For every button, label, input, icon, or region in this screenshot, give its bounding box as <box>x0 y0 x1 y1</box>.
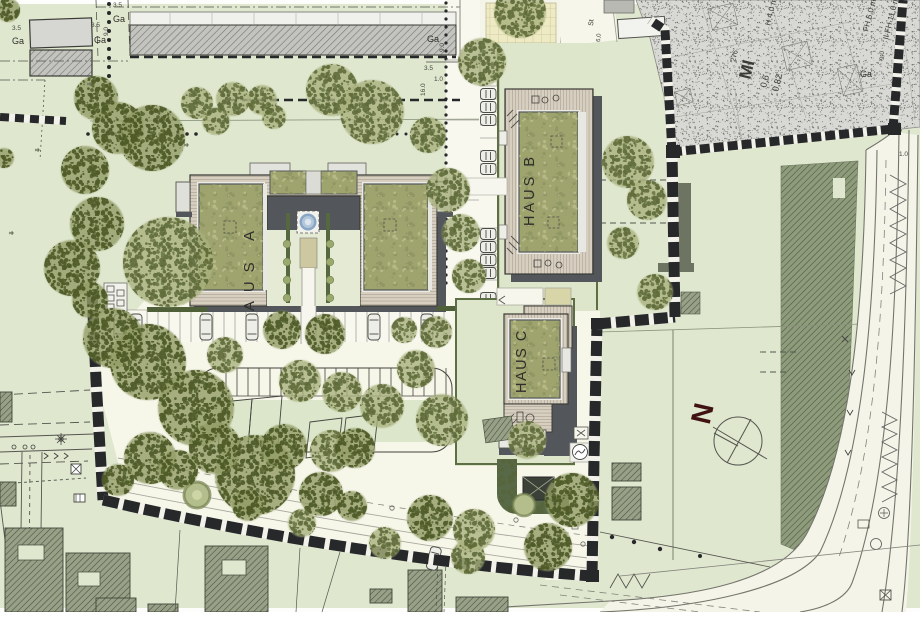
svg-text:Ga: Ga <box>113 14 125 24</box>
svg-text:Ga: Ga <box>860 69 872 79</box>
svg-text:3.5: 3.5 <box>12 25 21 32</box>
svg-text:3.5: 3.5 <box>91 22 100 29</box>
svg-text:Ga: Ga <box>12 36 24 46</box>
svg-text:HAUS B: HAUS B <box>522 154 538 226</box>
svg-text:3.5: 3.5 <box>424 65 433 72</box>
svg-text:St: St <box>588 19 596 26</box>
svg-text:9.0: 9.0 <box>879 51 886 60</box>
svg-text:1.0: 1.0 <box>899 151 908 158</box>
svg-text:9.0: 9.0 <box>103 27 110 36</box>
svg-text:3.5: 3.5 <box>113 2 122 9</box>
svg-text:Ga: Ga <box>427 34 439 44</box>
svg-text:1.0: 1.0 <box>434 76 443 83</box>
svg-text:HAUS C: HAUS C <box>514 329 530 393</box>
svg-text:16.0: 16.0 <box>420 83 427 96</box>
svg-text:6,0: 6,0 <box>596 33 603 42</box>
